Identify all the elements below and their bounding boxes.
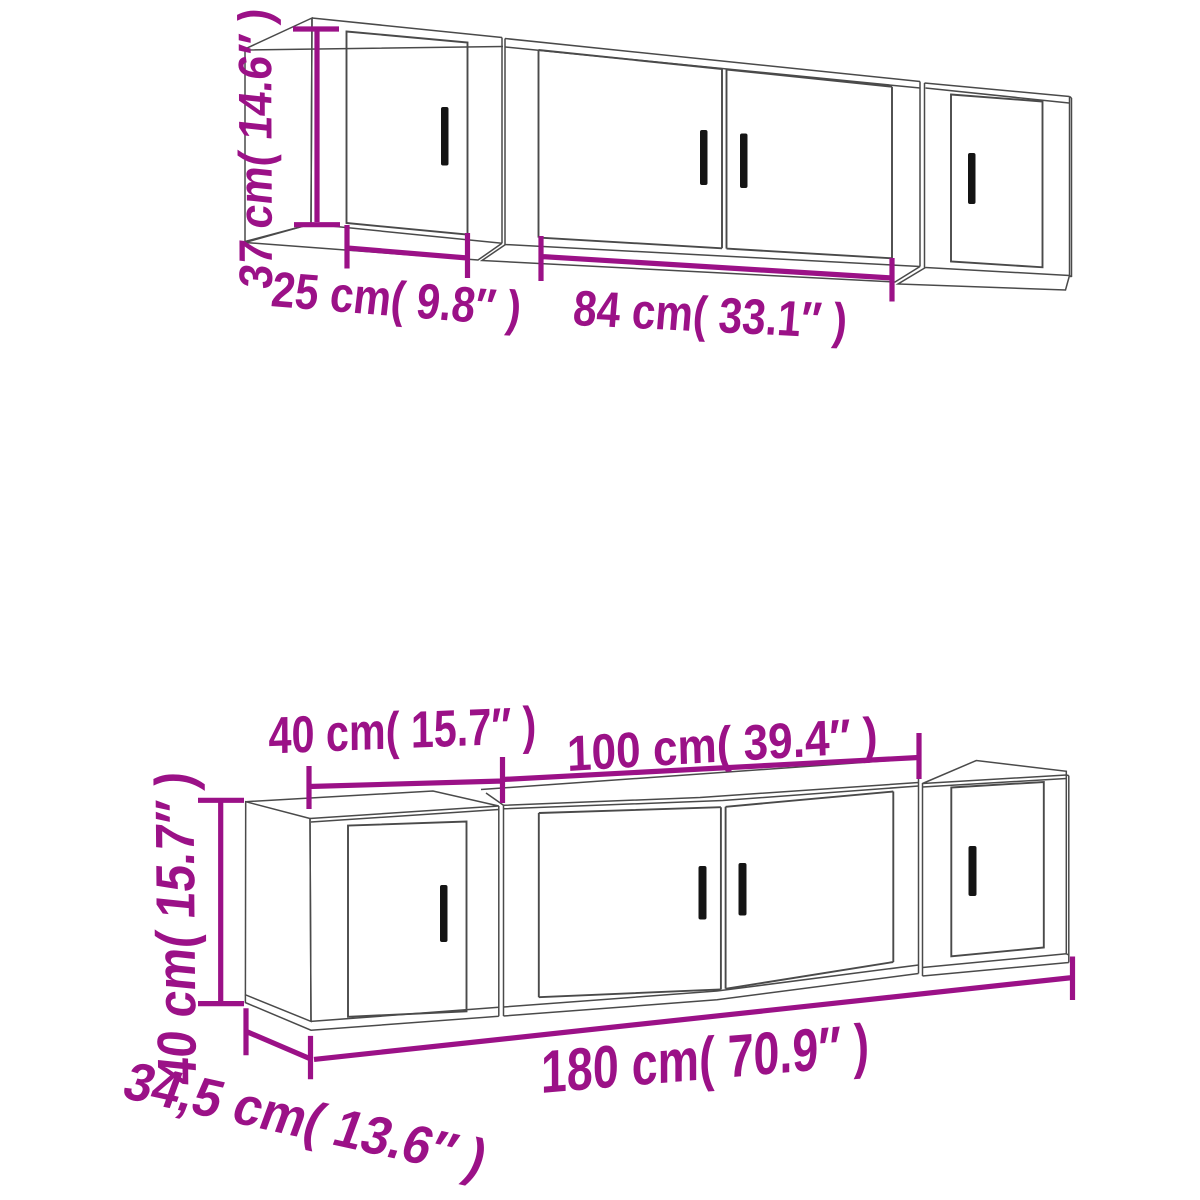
svg-text:25 cm( 9.8″ ): 25 cm( 9.8″ ) [269,261,525,337]
svg-text:180 cm( 70.9″ ): 180 cm( 70.9″ ) [541,1012,869,1107]
svg-text:100 cm( 39.4″ ): 100 cm( 39.4″ ) [566,707,878,782]
svg-text:84 cm( 33.1″ ): 84 cm( 33.1″ ) [571,280,849,349]
svg-text:34,5 cm( 13.6″ ): 34,5 cm( 13.6″ ) [116,1052,495,1189]
svg-text:37 cm( 14.6″ ): 37 cm( 14.6″ ) [228,6,282,292]
svg-text:40 cm( 15.7″ ): 40 cm( 15.7″ ) [268,697,536,766]
svg-text:40 cm( 15.7″ ): 40 cm( 15.7″ ) [144,769,209,1088]
